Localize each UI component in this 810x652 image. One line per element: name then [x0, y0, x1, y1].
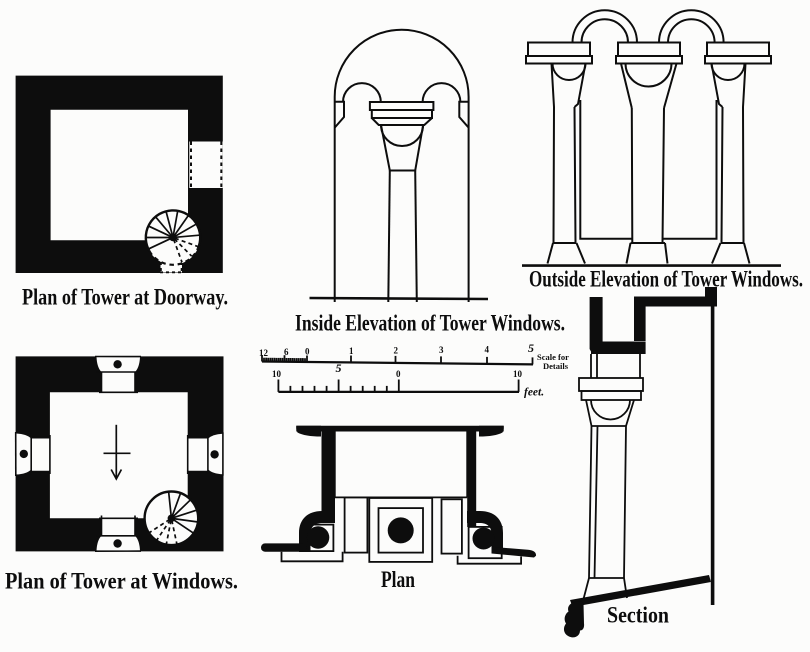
svg-text:10: 10 [272, 369, 282, 379]
svg-text:Outside Elevation of Tower Win: Outside Elevation of Tower Windows. [529, 267, 803, 292]
svg-text:Section: Section [607, 603, 669, 628]
svg-text:Details: Details [543, 361, 569, 371]
svg-text:0: 0 [305, 347, 310, 357]
svg-text:4: 4 [485, 345, 490, 355]
svg-text:6: 6 [284, 347, 289, 357]
svg-text:5: 5 [336, 361, 342, 375]
svg-text:0: 0 [396, 369, 401, 379]
svg-text:Plan: Plan [381, 567, 415, 592]
svg-text:12: 12 [259, 348, 269, 358]
svg-text:Plan of Tower at Doorway.: Plan of Tower at Doorway. [22, 285, 228, 310]
svg-text:10: 10 [513, 369, 523, 379]
svg-text:1: 1 [349, 346, 354, 356]
svg-text:Plan of Tower at Windows.: Plan of Tower at Windows. [5, 569, 238, 594]
svg-text:3: 3 [439, 345, 444, 355]
svg-text:5: 5 [528, 341, 534, 355]
svg-text:Inside Elevation of Tower Wind: Inside Elevation of Tower Windows. [295, 311, 565, 336]
svg-text:feet.: feet. [524, 387, 544, 399]
svg-text:2: 2 [394, 346, 399, 356]
